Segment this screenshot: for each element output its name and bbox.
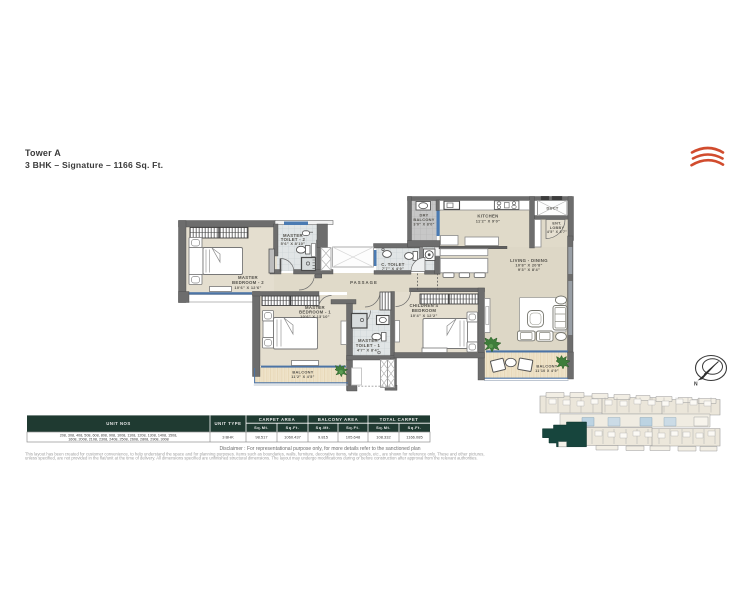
- svg-text:10'4" X 12'2": 10'4" X 12'2": [410, 313, 437, 318]
- svg-text:9'3" X 8'4": 9'3" X 8'4": [518, 267, 540, 272]
- svg-text:UNIT NOS: UNIT NOS: [106, 421, 131, 426]
- svg-text:unless specified, are not prov: unless specified, are not provided in th…: [25, 455, 478, 460]
- svg-text:1166.085: 1166.085: [406, 435, 423, 440]
- svg-text:10'6" X 12'6": 10'6" X 12'6": [234, 285, 261, 290]
- svg-text:4'7" X 8'4": 4'7" X 8'4": [357, 348, 379, 353]
- svg-text:98.517: 98.517: [255, 435, 268, 440]
- svg-text:3 BHK: 3 BHK: [222, 435, 234, 440]
- svg-text:5'6" X 8'10": 5'6" X 8'10": [281, 241, 306, 246]
- svg-text:BALCONY: BALCONY: [292, 370, 313, 375]
- svg-text:CARPET AREA: CARPET AREA: [259, 417, 295, 422]
- svg-text:11'2" X 4'5": 11'2" X 4'5": [291, 375, 314, 379]
- svg-text:3'0" X 8'0": 3'0" X 8'0": [413, 223, 434, 227]
- svg-text:BALCONY AREA: BALCONY AREA: [318, 417, 358, 422]
- svg-text:N: N: [694, 382, 698, 388]
- svg-text:1608, 2008, 2108, 2308, 2408,: 1608, 2008, 2108, 2308, 2408, 2508, 2608…: [68, 437, 168, 441]
- svg-text:BALCONY: BALCONY: [536, 364, 557, 369]
- svg-text:Sq.Ft.: Sq.Ft.: [346, 425, 360, 430]
- svg-text:108.332: 108.332: [376, 435, 391, 440]
- svg-text:Sq.Mt.: Sq.Mt.: [254, 425, 269, 430]
- svg-text:4'5" X 8'7": 4'5" X 8'7": [547, 230, 567, 234]
- svg-text:9.815: 9.815: [318, 435, 329, 440]
- svg-text:DUCT: DUCT: [546, 206, 558, 211]
- svg-text:Sq.Mt.: Sq.Mt.: [376, 425, 391, 430]
- svg-text:BALCONY: BALCONY: [413, 217, 434, 222]
- svg-text:11'2" X 9'0": 11'2" X 9'0": [476, 218, 501, 223]
- svg-text:PASSAGE: PASSAGE: [350, 280, 378, 285]
- svg-text:105.648: 105.648: [346, 435, 361, 440]
- svg-text:Sq.Ft.: Sq.Ft.: [408, 425, 422, 430]
- svg-text:TOTAL CARPET: TOTAL CARPET: [380, 417, 419, 422]
- svg-text:11'10 X 4'9": 11'10 X 4'9": [535, 369, 559, 373]
- svg-text:1060.437: 1060.437: [284, 435, 301, 440]
- svg-text:10'6" X 13'10": 10'6" X 13'10": [300, 314, 330, 319]
- svg-text:7'7" X 4'9": 7'7" X 4'9": [382, 266, 404, 271]
- svg-text:UNIT TYPE: UNIT TYPE: [215, 421, 242, 426]
- svg-text:Sq.Mt.: Sq.Mt.: [316, 425, 331, 430]
- svg-text:Sq.Ft.: Sq.Ft.: [286, 425, 300, 430]
